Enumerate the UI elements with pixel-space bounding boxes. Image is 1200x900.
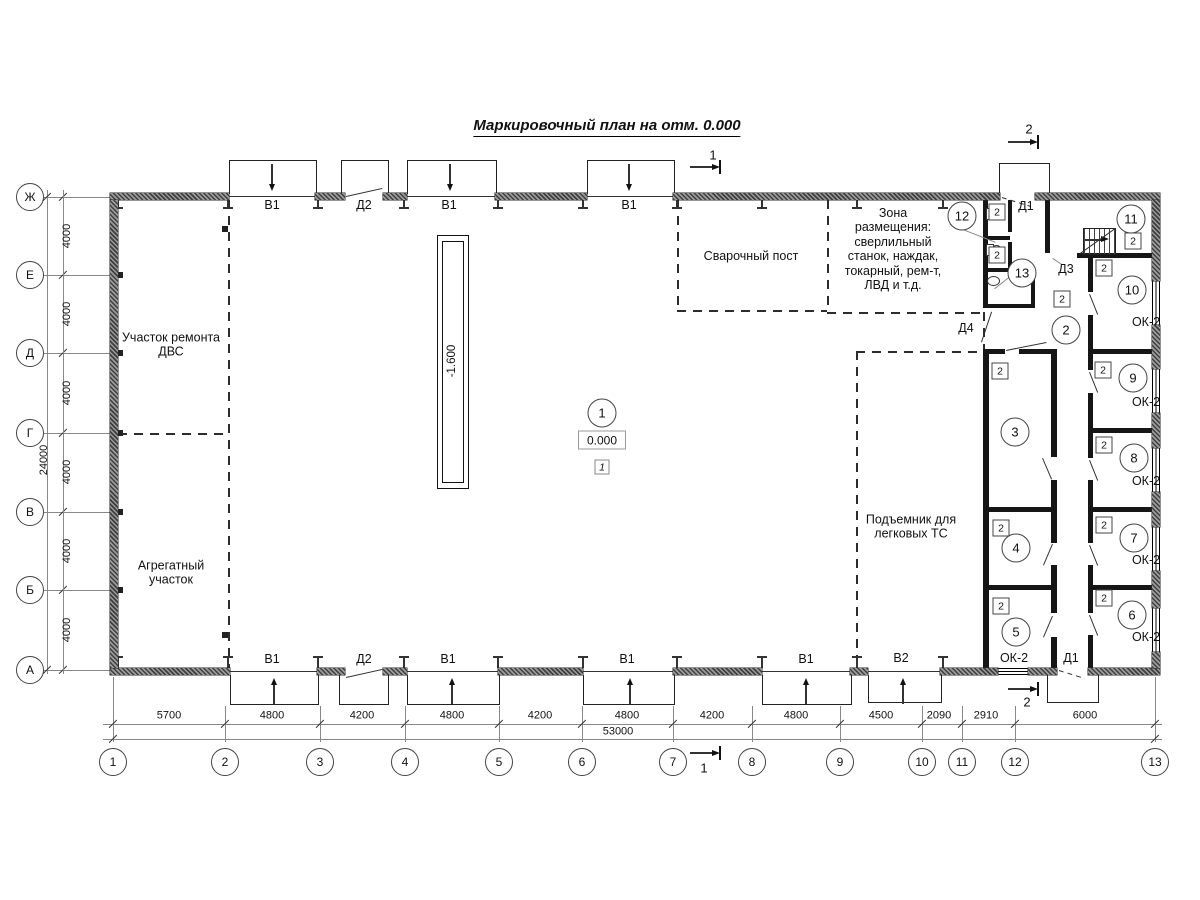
dimension-label: 4500 (869, 710, 893, 723)
dimension-label: 4000 (61, 224, 73, 248)
axis-circle-col: 11 (948, 748, 976, 776)
dimension-label: 4000 (61, 381, 73, 405)
axis-circle-col: 3 (306, 748, 334, 776)
switch-tag: 2 (992, 363, 1009, 380)
floor-plan-drawing: Маркировочный план на отм. 0.000 ЖЕДГВБА… (0, 0, 1200, 900)
axis-circle-col: 9 (826, 748, 854, 776)
opening-threshold (868, 671, 940, 672)
exterior-wall (110, 668, 230, 675)
axis-circle-col: 1 (99, 748, 127, 776)
switch-tag: 2 (1125, 233, 1142, 250)
dimension-label: 4800 (615, 710, 639, 723)
zone-label: Подъемник длялегковых ТС (866, 513, 956, 542)
dimension-label: 4800 (784, 710, 808, 723)
dimension-label: 4000 (61, 302, 73, 326)
dim-line (47, 190, 48, 674)
door-swing (1089, 545, 1098, 565)
switch-tag: 2 (1096, 260, 1113, 277)
interior-wall (1088, 635, 1093, 672)
room-number-circle: 10 (1118, 276, 1147, 305)
door-swing (1043, 616, 1053, 637)
axis-circle-col: 7 (659, 748, 687, 776)
room-number-circle: 3 (1001, 418, 1030, 447)
opening-label: Д2 (356, 652, 371, 666)
interior-wall (1088, 393, 1093, 458)
exterior-wall (1152, 492, 1160, 527)
opening-threshold (230, 671, 317, 672)
exterior-wall (498, 668, 583, 675)
zone-dashed-line (856, 351, 983, 353)
section-tick (719, 746, 721, 760)
axis-circle-row: А (16, 656, 44, 684)
dimension-label: 4800 (260, 710, 284, 723)
gate-arrowhead-icon (447, 184, 453, 191)
interior-wall (983, 304, 1035, 308)
axis-circle-col: 2 (211, 748, 239, 776)
gate-arrowhead-icon (900, 678, 906, 685)
column-symbol (942, 658, 943, 668)
exterior-wall (1152, 413, 1160, 448)
section-arrow (690, 752, 714, 753)
exterior-wall (383, 193, 407, 200)
room-number-circle: 13 (1008, 259, 1037, 288)
zone-dashed-line (827, 200, 829, 310)
section-tick (1037, 682, 1039, 696)
gate-canopy (339, 675, 389, 705)
axis-line (43, 433, 110, 434)
column-symbol (317, 658, 318, 668)
room-number-circle: 1 (588, 399, 617, 428)
opening-label: В1 (798, 652, 813, 666)
opening-threshold (583, 671, 673, 672)
sink-icon (987, 276, 1000, 286)
axis-circle-col: 5 (485, 748, 513, 776)
room-number-circle: 11 (1117, 205, 1146, 234)
gate-arrow (449, 164, 450, 184)
opening-label: В1 (264, 652, 279, 666)
dimension-label: 5700 (157, 710, 181, 723)
dim-line (63, 190, 64, 674)
exterior-wall (383, 668, 407, 675)
room-number-circle: 7 (1120, 524, 1149, 553)
gate-arrow (629, 684, 630, 704)
section-marker-label: 1 (700, 762, 707, 777)
zone-dashed-line (118, 433, 228, 435)
gate-canopy (999, 163, 1050, 194)
switch-tag: 2 (989, 247, 1006, 264)
door-swing (1042, 458, 1052, 479)
interior-wall (1088, 349, 1160, 354)
section-marker-label: 2 (1023, 696, 1030, 711)
zone-label: Участок ремонтаДВС (122, 331, 220, 360)
opening-label: ОК-2 (1000, 651, 1028, 665)
door-swing (1089, 615, 1098, 635)
zone-dashed-line (677, 200, 679, 310)
dimension-label: 4200 (700, 710, 724, 723)
interior-wall (983, 349, 1005, 354)
section-arrow (690, 166, 714, 167)
door-swing (1043, 544, 1053, 565)
column-symbol (582, 658, 583, 668)
axis-line (43, 670, 110, 671)
axis-circle-row: Ж (16, 183, 44, 211)
zone-label: Сварочный пост (704, 249, 799, 263)
drawing-title: Маркировочный план на отм. 0.000 (473, 117, 740, 137)
axis-circle-row: Е (16, 261, 44, 289)
opening-threshold (407, 671, 498, 672)
window-ok2 (998, 668, 1028, 675)
room-number-circle: 5 (1002, 618, 1031, 647)
zone-dashed-line (856, 351, 858, 668)
gate-arrowhead-icon (627, 678, 633, 685)
room-number-circle: 6 (1118, 601, 1147, 630)
pit-elevation-label: -1.600 (445, 342, 459, 381)
exterior-wall (850, 668, 868, 675)
floor-elevation-box: 0.000 (578, 431, 626, 450)
floor-type-tag: 1 (595, 460, 610, 475)
opening-label: ОК-2 (1132, 630, 1160, 644)
dimension-label: 4000 (61, 618, 73, 642)
exterior-wall (315, 193, 345, 200)
gate-arrowhead-icon (626, 184, 632, 191)
interior-wall (1088, 428, 1160, 433)
zone-dashed-line (677, 310, 827, 312)
gate-arrowhead-icon (269, 184, 275, 191)
column-symbol (403, 658, 404, 668)
exterior-wall (1028, 668, 1057, 675)
room-number-circle: 9 (1119, 364, 1148, 393)
dimension-label: 4000 (61, 460, 73, 484)
axis-line (43, 353, 110, 354)
column-symbol (761, 658, 762, 668)
exterior-wall (673, 668, 762, 675)
dimension-label: 24000 (38, 445, 50, 476)
axis-circle-col: 13 (1141, 748, 1169, 776)
interior-wall (983, 507, 1057, 512)
section-tick (719, 160, 721, 174)
column-marker (222, 632, 228, 638)
gate-arrowhead-icon (803, 678, 809, 685)
gate-arrowhead-icon (449, 678, 455, 685)
dimension-label: 2090 (927, 710, 951, 723)
room-number-circle: 12 (948, 202, 977, 231)
switch-tag: 2 (1096, 517, 1113, 534)
exterior-wall (1152, 571, 1160, 608)
interior-wall (1088, 255, 1093, 292)
interior-wall (1051, 637, 1057, 672)
column-symbol (757, 207, 767, 209)
interior-wall (1045, 193, 1050, 253)
axis-circle-row: Г (16, 419, 44, 447)
gate-arrow (805, 684, 806, 704)
interior-wall (1019, 349, 1057, 354)
exterior-wall (1088, 668, 1160, 675)
axis-circle-row: Д (16, 339, 44, 367)
dimension-label: 4800 (440, 710, 464, 723)
dimension-label: 4200 (528, 710, 552, 723)
interior-wall (983, 585, 1057, 590)
axis-circle-row: В (16, 498, 44, 526)
column-symbol (313, 207, 323, 209)
switch-tag: 2 (993, 520, 1010, 537)
dimension-label: 53000 (603, 726, 634, 739)
switch-tag: 2 (1054, 291, 1071, 308)
interior-wall (1088, 507, 1160, 512)
exterior-wall (1035, 193, 1160, 200)
axis-line (43, 512, 110, 513)
axis-line (43, 590, 110, 591)
door-swing (1089, 460, 1098, 480)
exterior-wall (110, 200, 118, 668)
switch-tag: 2 (989, 204, 1006, 221)
section-marker-label: 1 (709, 149, 716, 164)
column-symbol (493, 207, 503, 209)
exterior-wall (110, 193, 229, 200)
zone-dashed-line (827, 312, 983, 314)
opening-label: ОК-2 (1132, 474, 1160, 488)
column-symbol (578, 207, 588, 209)
exterior-wall (1152, 200, 1160, 281)
opening-label: В1 (619, 652, 634, 666)
opening-label: Д1 (1018, 199, 1033, 213)
opening-label: В2 (893, 651, 908, 665)
extension-line (113, 677, 114, 742)
column-symbol (227, 658, 228, 668)
zone-dashed-line (983, 312, 985, 349)
axis-circle-col: 4 (391, 748, 419, 776)
opening-label: В1 (440, 652, 455, 666)
axis-circle-col: 8 (738, 748, 766, 776)
interior-wall (1008, 200, 1012, 232)
exterior-wall (317, 668, 345, 675)
axis-circle-col: 10 (908, 748, 936, 776)
opening-label: Д1 (1063, 651, 1078, 665)
exterior-wall (1152, 325, 1160, 369)
column-symbol (676, 658, 677, 668)
exterior-wall (1152, 652, 1160, 668)
opening-label: В1 (441, 198, 456, 212)
dimension-label: 4200 (350, 710, 374, 723)
column-symbol (399, 207, 409, 209)
dimension-label: 6000 (1073, 710, 1097, 723)
axis-circle-row: Б (16, 576, 44, 604)
room-number-circle: 2 (1052, 316, 1081, 345)
axis-circle-col: 12 (1001, 748, 1029, 776)
room-number-circle: 4 (1002, 534, 1031, 563)
interior-wall (1051, 352, 1057, 457)
exterior-wall (673, 193, 1000, 200)
section-arrow (1008, 141, 1032, 142)
room-number-circle: 8 (1120, 444, 1149, 473)
opening-threshold (762, 671, 850, 672)
opening-label: Д4 (958, 321, 973, 335)
gate-arrow (451, 684, 452, 704)
opening-label: ОК-2 (1132, 395, 1160, 409)
axis-circle-col: 6 (568, 748, 596, 776)
door-swing (1089, 294, 1098, 314)
gate-arrow (271, 164, 272, 184)
column-symbol (497, 658, 498, 668)
exterior-wall (495, 193, 587, 200)
axis-line (43, 275, 110, 276)
section-marker-label: 2 (1025, 123, 1032, 138)
gate-arrowhead-icon (271, 678, 277, 685)
dimension-label: 2910 (974, 710, 998, 723)
exterior-wall (940, 668, 998, 675)
gate-arrow (273, 684, 274, 704)
switch-tag: 2 (993, 598, 1010, 615)
gate-arrow (628, 164, 629, 184)
opening-label: ОК-2 (1132, 553, 1160, 567)
dimension-label: 4000 (61, 539, 73, 563)
switch-tag: 2 (1096, 437, 1113, 454)
interior-wall (1088, 315, 1093, 370)
opening-label: В1 (621, 198, 636, 212)
gate-arrow (902, 684, 903, 704)
section-arrow (1008, 688, 1032, 689)
dim-line (103, 739, 1162, 740)
gate-canopy (1047, 675, 1099, 703)
dim-line (103, 724, 1162, 725)
column-symbol (856, 658, 857, 668)
opening-label: В1 (264, 198, 279, 212)
column-symbol (223, 207, 233, 209)
switch-tag: 2 (1095, 362, 1112, 379)
extension-line (1155, 677, 1156, 742)
opening-label: Д2 (356, 198, 371, 212)
opening-label: Д3 (1058, 262, 1073, 276)
column-marker (222, 226, 228, 232)
zone-dashed-line (228, 200, 230, 668)
switch-tag: 2 (1096, 590, 1113, 607)
section-tick (1037, 135, 1039, 149)
axis-line (43, 197, 110, 198)
zone-label: Агрегатныйучасток (138, 559, 204, 588)
zone-label: Зонаразмещения:сверлильныйстанок, наждак… (845, 206, 941, 292)
column-symbol (672, 207, 682, 209)
